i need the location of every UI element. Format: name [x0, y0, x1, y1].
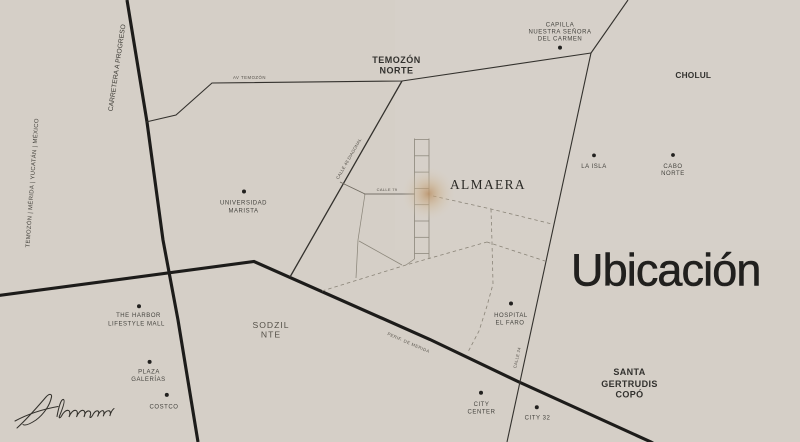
svg-text:TEMOZÓN: TEMOZÓN: [372, 54, 421, 65]
svg-text:PLAZA: PLAZA: [138, 370, 160, 376]
svg-text:CITY 32: CITY 32: [525, 416, 551, 422]
svg-text:THE HARBOR: THE HARBOR: [116, 313, 161, 319]
svg-text:CITY: CITY: [474, 402, 490, 408]
svg-text:SANTA: SANTA: [613, 367, 645, 377]
svg-text:LIFESTYLE MALL: LIFESTYLE MALL: [108, 321, 165, 327]
svg-text:COSTCO: COSTCO: [150, 404, 179, 410]
svg-text:LA ISLA: LA ISLA: [581, 164, 607, 170]
svg-text:CENTER: CENTER: [468, 410, 496, 416]
svg-text:DEL CARMEN: DEL CARMEN: [538, 37, 583, 43]
svg-text:GALERÍAS: GALERÍAS: [131, 376, 165, 383]
svg-text:HOSPITAL: HOSPITAL: [494, 313, 528, 319]
svg-text:GERTRUDIS: GERTRUDIS: [601, 379, 658, 389]
svg-text:COPÓ: COPÓ: [615, 389, 643, 400]
svg-text:NORTE: NORTE: [661, 171, 685, 177]
svg-text:Ubicación: Ubicación: [571, 245, 761, 296]
svg-text:CAPILLA: CAPILLA: [546, 23, 575, 29]
svg-text:EL FARO: EL FARO: [496, 321, 525, 327]
svg-text:AV TEMOZÓN: AV TEMOZÓN: [233, 75, 266, 80]
svg-text:CABO: CABO: [663, 164, 682, 170]
svg-text:UNIVERSIDAD: UNIVERSIDAD: [220, 201, 267, 207]
svg-text:CHOLUL: CHOLUL: [675, 70, 711, 80]
svg-text:NORTE: NORTE: [380, 66, 414, 76]
svg-text:CALLE 79: CALLE 79: [377, 187, 398, 192]
svg-text:MARISTA: MARISTA: [228, 209, 258, 215]
svg-text:NTE: NTE: [261, 330, 281, 340]
svg-text:NUESTRA SEÑORA: NUESTRA SEÑORA: [528, 29, 591, 36]
svg-text:SODZIL: SODZIL: [252, 320, 289, 330]
svg-text:ALMAERA: ALMAERA: [450, 177, 526, 192]
